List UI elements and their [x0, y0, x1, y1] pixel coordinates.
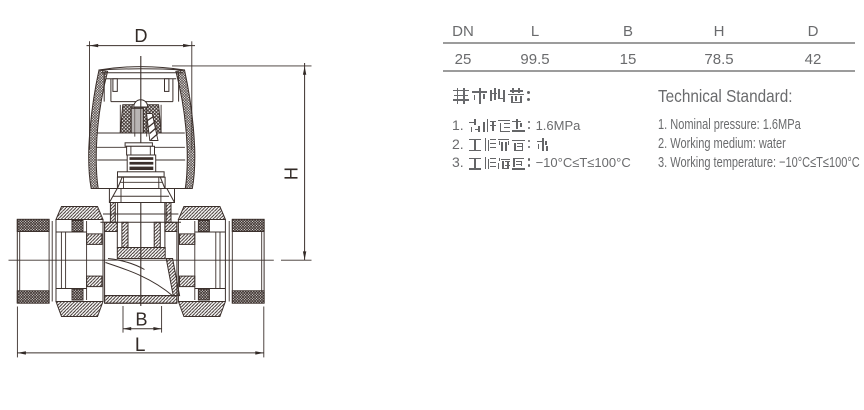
svg-text:D: D [134, 26, 147, 46]
svg-text:B: B [135, 310, 147, 330]
svg-text:H: H [282, 167, 302, 180]
